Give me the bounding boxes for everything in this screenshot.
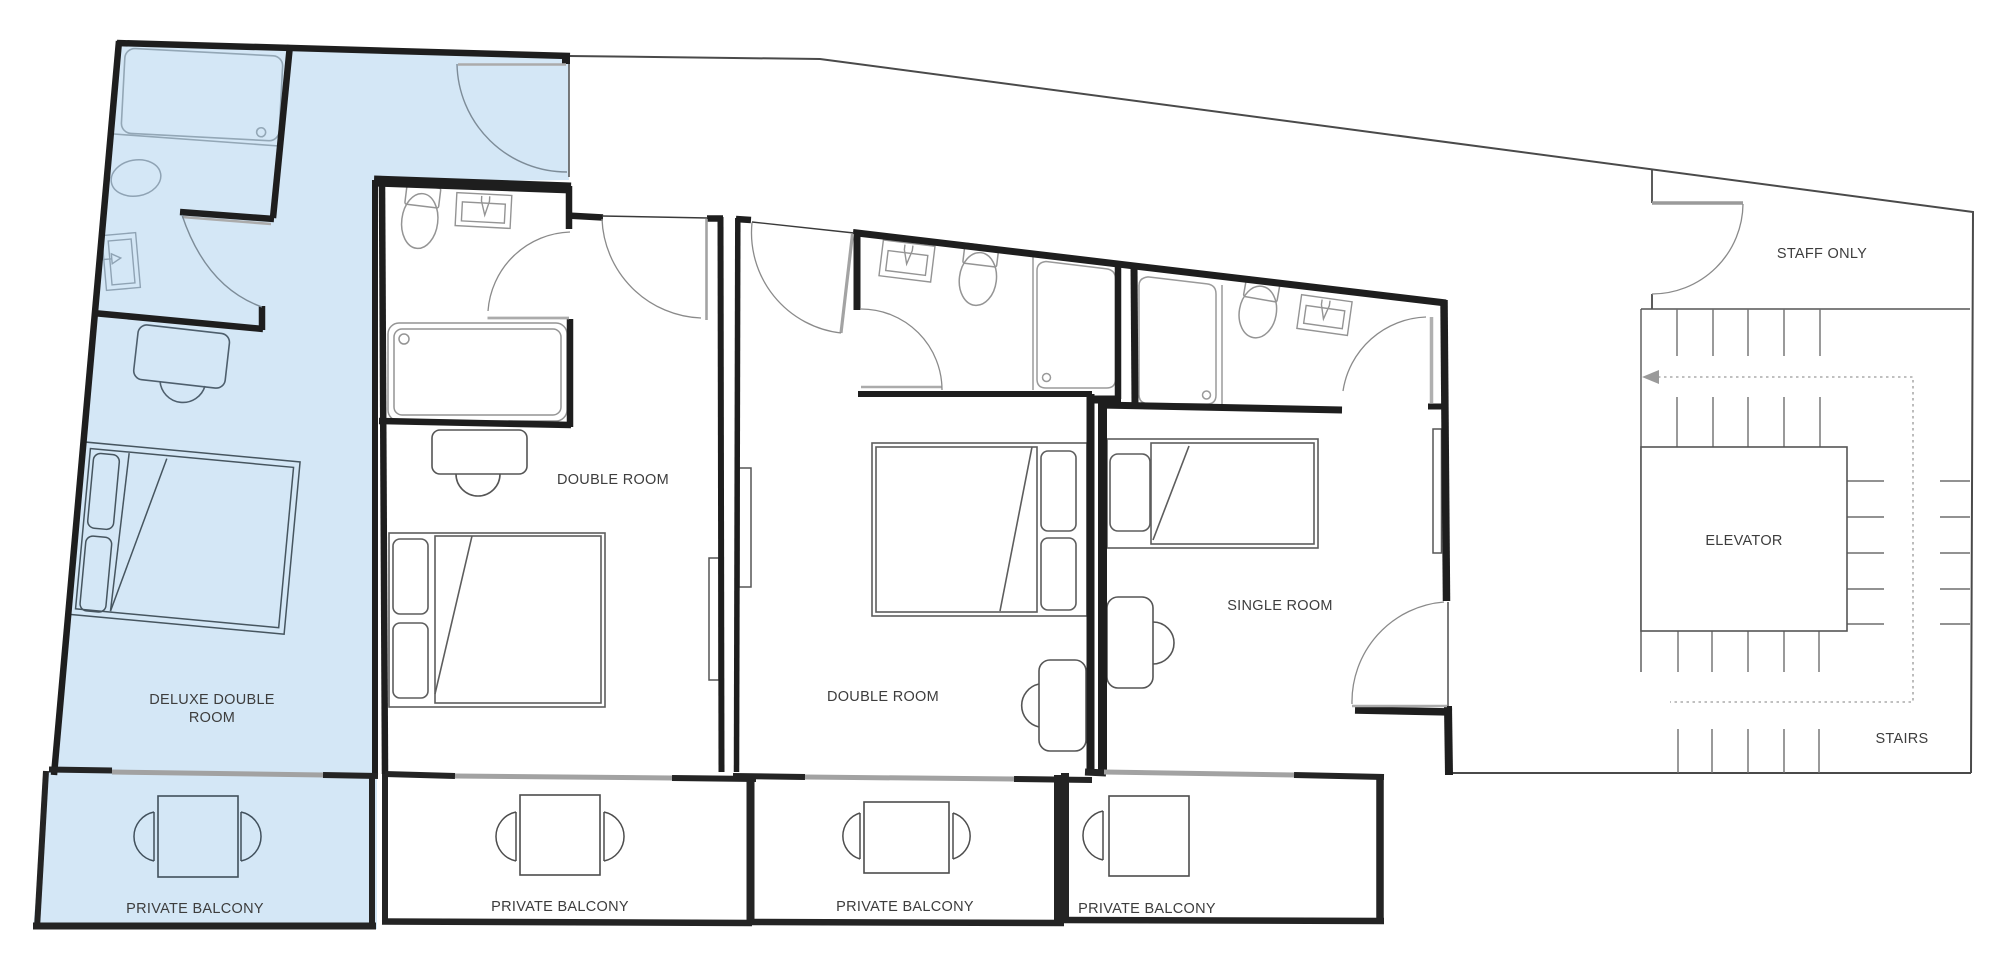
svg-text:PRIVATE BALCONY: PRIVATE BALCONY — [1078, 901, 1216, 917]
svg-text:STAFF ONLY: STAFF ONLY — [1777, 246, 1867, 262]
svg-text:ELEVATOR: ELEVATOR — [1705, 533, 1782, 549]
svg-text:PRIVATE BALCONY: PRIVATE BALCONY — [491, 899, 629, 915]
svg-text:SINGLE ROOM: SINGLE ROOM — [1227, 598, 1333, 614]
svg-text:DOUBLE ROOM: DOUBLE ROOM — [827, 689, 939, 705]
svg-text:PRIVATE BALCONY: PRIVATE BALCONY — [836, 899, 974, 915]
svg-text:DOUBLE ROOM: DOUBLE ROOM — [557, 472, 669, 488]
svg-text:DELUXE DOUBLE: DELUXE DOUBLE — [149, 692, 275, 708]
svg-text:PRIVATE BALCONY: PRIVATE BALCONY — [126, 901, 264, 917]
svg-text:ROOM: ROOM — [189, 710, 235, 726]
svg-text:STAIRS: STAIRS — [1875, 731, 1928, 747]
